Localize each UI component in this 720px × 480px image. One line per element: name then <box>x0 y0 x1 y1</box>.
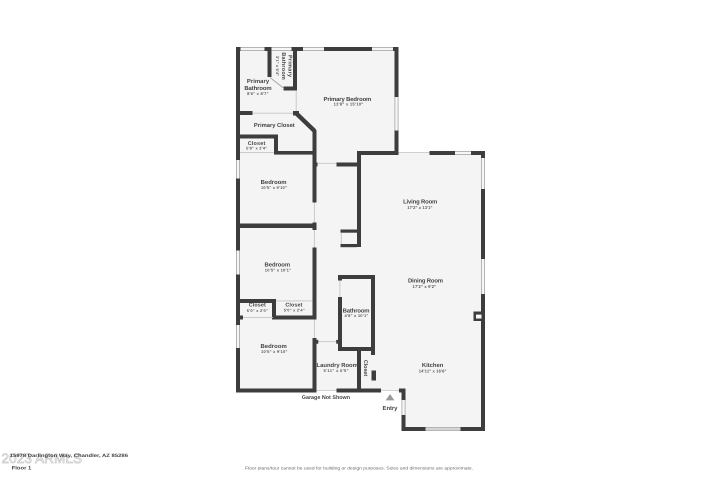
svg-text:13'8" x 15'10": 13'8" x 15'10" <box>334 102 364 107</box>
svg-text:10'5" x 10'1": 10'5" x 10'1" <box>265 267 291 272</box>
svg-text:10'5" x 9'10": 10'5" x 9'10" <box>261 349 287 354</box>
svg-text:Garage Not Shown: Garage Not Shown <box>302 395 350 401</box>
svg-text:17'2" x 9'2": 17'2" x 9'2" <box>413 284 437 289</box>
svg-text:Closet: Closet <box>362 360 368 377</box>
svg-text:17'2" x 13'1": 17'2" x 13'1" <box>407 205 432 210</box>
svg-text:Entry: Entry <box>383 405 399 412</box>
svg-text:Floor 1: Floor 1 <box>12 465 32 471</box>
svg-text:5'0" x 2'4": 5'0" x 2'4" <box>284 308 305 313</box>
svg-text:Primary Closet: Primary Closet <box>254 122 295 129</box>
svg-text:4'8" x 10'1": 4'8" x 10'1" <box>345 313 369 318</box>
svg-text:Floor plans/tour cannot be use: Floor plans/tour cannot be used for buil… <box>245 465 473 470</box>
svg-text:8'6" x 8'7": 8'6" x 8'7" <box>247 91 268 96</box>
svg-text:5'11" x 6'5": 5'11" x 6'5" <box>324 368 349 373</box>
svg-text:5'0" x 2'0": 5'0" x 2'0" <box>247 308 268 313</box>
svg-text:Primary: Primary <box>247 78 270 85</box>
svg-text:Primary: Primary <box>287 55 293 77</box>
svg-text:3'1" x 5'4": 3'1" x 5'4" <box>275 56 280 76</box>
svg-text:14'11" x 16'6": 14'11" x 16'6" <box>419 369 447 374</box>
svg-text:10'5" x 9'10": 10'5" x 9'10" <box>261 185 287 190</box>
svg-text:15978 Darlington Way, Chandler: 15978 Darlington Way, Chandler, AZ 85286 <box>10 453 129 459</box>
svg-text:5'9" x 2'4": 5'9" x 2'4" <box>246 145 267 150</box>
